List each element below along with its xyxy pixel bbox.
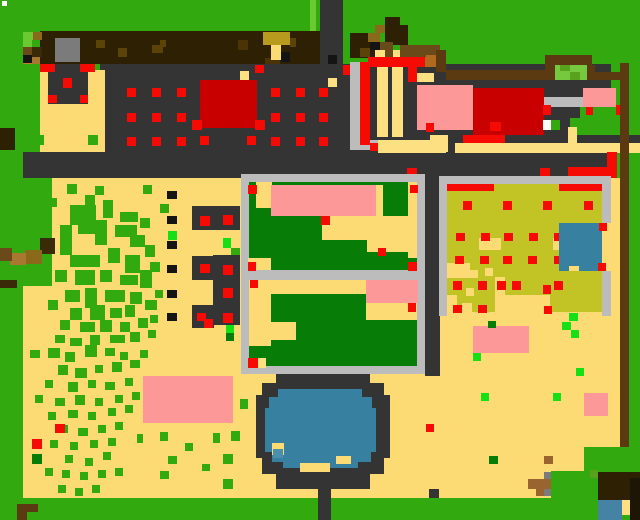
market-stalls (200, 216, 210, 226)
orchard (202, 464, 210, 471)
orchard (85, 195, 95, 205)
north-terrain (310, 0, 316, 32)
plaza-items (127, 113, 136, 122)
south-features (488, 321, 496, 328)
market-stalls (223, 313, 233, 323)
garden-plots (248, 358, 258, 368)
orchard (85, 345, 97, 357)
orchard (60, 225, 72, 255)
orchard (155, 290, 163, 298)
orchard (30, 350, 40, 358)
farm-house (80, 64, 95, 72)
orchard (160, 204, 169, 213)
orchard (213, 433, 220, 443)
market-stalls (167, 265, 177, 273)
orchard (120, 212, 138, 222)
north-terrain (32, 47, 42, 57)
olive-garden (447, 184, 494, 191)
orchard (75, 368, 87, 378)
orchard (90, 305, 105, 320)
garden-plots (366, 280, 418, 303)
orchard (143, 185, 152, 194)
west-green-bank (40, 238, 55, 254)
farm-house (35, 135, 44, 145)
fence-and-hedge-box (446, 70, 546, 80)
market-hall (360, 62, 370, 145)
orchard (100, 320, 112, 332)
west-green-bank (0, 128, 15, 150)
olive-garden (512, 281, 521, 290)
olive-garden (485, 268, 493, 276)
orchard (105, 382, 115, 390)
north-terrain (368, 33, 380, 42)
garden-plots (256, 280, 366, 294)
market-hall (377, 67, 388, 137)
orchard (88, 412, 96, 420)
north-terrain (2, 1, 7, 6)
plaza-items (319, 137, 328, 146)
olive-garden (455, 256, 464, 264)
orchard (110, 335, 125, 343)
south-features (473, 326, 529, 353)
market-stalls (204, 319, 213, 328)
north-terrain (23, 40, 32, 47)
market-hall (408, 62, 417, 82)
orchard (55, 335, 65, 343)
south-green-band (584, 447, 640, 471)
orchard (160, 471, 169, 479)
north-terrain (360, 48, 370, 57)
orchard (150, 262, 160, 272)
olive-garden (439, 176, 611, 184)
east-green-strip (629, 152, 640, 471)
fence-and-hedge-box (426, 55, 436, 65)
olive-garden (529, 233, 538, 241)
orchard (92, 485, 100, 493)
south-features (571, 330, 579, 338)
market-stalls (167, 216, 177, 224)
east-block (430, 135, 448, 152)
orchard (130, 360, 140, 368)
market-hall (370, 143, 378, 151)
west-green-bank (23, 178, 52, 286)
market-stalls (167, 290, 177, 298)
orchard (98, 470, 106, 478)
plaza-items (177, 137, 186, 146)
west-green-bank (10, 253, 26, 265)
olive-garden (503, 256, 512, 264)
orchard (103, 452, 111, 460)
north-terrain (33, 32, 42, 40)
garden-plots (376, 185, 383, 216)
garden-plots (408, 303, 416, 312)
garden-plots (241, 174, 425, 182)
orchard (65, 352, 75, 362)
plaza-items (247, 136, 256, 145)
orchard (58, 485, 66, 493)
south-features (544, 456, 553, 464)
garden-plots (378, 248, 386, 256)
plaza-items (296, 113, 305, 122)
olive-garden (453, 305, 462, 313)
fence-and-hedge-box (436, 50, 446, 72)
market-hall (490, 122, 501, 131)
south-features (481, 393, 489, 401)
orchard (231, 431, 240, 441)
orchard (35, 395, 43, 403)
south-features (569, 313, 578, 321)
olive-garden (569, 266, 579, 271)
big-pond (273, 449, 283, 458)
orchard (75, 488, 83, 496)
plaza-items (177, 113, 186, 122)
orchard (60, 320, 70, 330)
olive-garden (478, 305, 487, 313)
south-features (429, 489, 439, 498)
north-terrain (55, 38, 80, 62)
plaza-items (240, 71, 249, 80)
plaza-items (192, 120, 202, 130)
orchard (130, 235, 145, 247)
plaza-items (127, 137, 136, 146)
orchard (150, 315, 158, 323)
plaza-items (152, 137, 161, 146)
south-features (473, 353, 481, 361)
orchard (103, 200, 113, 218)
orchard (90, 335, 100, 345)
market-stalls (167, 313, 177, 321)
fence-and-hedge-box (560, 65, 570, 71)
market-stalls (223, 238, 231, 248)
orchard (125, 305, 135, 317)
garden-plots (241, 366, 425, 374)
olive-garden (528, 256, 537, 264)
north-terrain (290, 38, 296, 47)
olive-garden (543, 285, 551, 294)
plaza-items (200, 136, 209, 145)
orchard (130, 292, 142, 304)
farm-house (63, 78, 72, 88)
east-block (448, 135, 455, 152)
orchard (50, 440, 58, 448)
orchard (120, 322, 130, 332)
orchard (105, 290, 125, 302)
plaza-items (319, 88, 328, 97)
orchard (120, 275, 138, 285)
orchard (240, 399, 248, 409)
big-pond (336, 456, 351, 464)
plaza-items (296, 137, 305, 146)
orchard (115, 422, 123, 430)
olive-garden (470, 270, 478, 278)
orchard (88, 380, 96, 388)
orchard (80, 322, 95, 332)
market-stalls (168, 231, 177, 240)
orchard (110, 308, 122, 318)
market-stalls (200, 264, 210, 273)
orchard (95, 220, 107, 245)
orchard (58, 365, 68, 375)
fence-and-hedge-box (587, 65, 595, 80)
orchard (68, 382, 78, 392)
fence-and-hedge-box (595, 72, 623, 80)
south-features (489, 456, 498, 464)
olive-garden (463, 201, 472, 210)
garden-plots (241, 270, 425, 280)
garden-plots (250, 280, 258, 288)
orchard (48, 198, 57, 207)
plaza-items (200, 80, 257, 128)
orchard (55, 398, 65, 406)
orchard (168, 456, 177, 464)
orchard (130, 332, 140, 342)
garden-plots (321, 216, 330, 225)
orchard (90, 440, 98, 448)
farm-house (88, 72, 105, 104)
orchard (132, 392, 140, 400)
orchard (68, 410, 78, 418)
olive-garden (439, 176, 447, 316)
plaza-items (271, 113, 280, 122)
big-pond (276, 470, 370, 489)
east-block (463, 135, 505, 143)
orchard (62, 470, 70, 478)
fence-and-hedge-box (620, 63, 629, 447)
south-green-band (630, 478, 640, 520)
farm-house (48, 95, 57, 103)
south-features (584, 393, 608, 416)
plaza-items (152, 113, 161, 122)
orchard (108, 438, 116, 446)
olive-garden (554, 281, 563, 290)
fence-and-hedge-box (545, 55, 592, 65)
orchard (145, 300, 157, 310)
north-terrain (160, 40, 166, 47)
south-features (576, 368, 584, 376)
plaza-items (271, 137, 280, 146)
orchard (80, 472, 88, 480)
olive-garden (584, 201, 593, 210)
olive-garden (497, 281, 506, 290)
south-green-band (318, 489, 331, 520)
plaza-items (177, 88, 186, 97)
orchard (67, 184, 77, 194)
south-green-band (536, 488, 544, 496)
orchard (70, 338, 82, 346)
west-green-bank (25, 250, 42, 264)
orchard (140, 350, 148, 358)
orchard (140, 270, 152, 288)
orchard (75, 270, 95, 285)
market-hall (392, 67, 403, 137)
north-terrain (96, 40, 105, 48)
plaza-items (255, 120, 265, 130)
market-stalls (223, 265, 233, 275)
east-block (568, 127, 577, 143)
roads (425, 176, 440, 376)
garden-plots (408, 262, 417, 271)
orchard (115, 395, 123, 403)
garden-plots (271, 322, 296, 340)
olive-garden (504, 233, 513, 241)
orchard (55, 270, 67, 282)
olive-garden (480, 256, 489, 264)
orchard (78, 428, 88, 436)
plaza-items (127, 88, 136, 97)
market-stalls (231, 248, 240, 255)
orchard (70, 255, 100, 267)
orchard (95, 398, 103, 406)
east-block (583, 88, 616, 107)
orchard (125, 378, 133, 386)
orchard (45, 380, 53, 388)
south-features (143, 376, 233, 423)
south-green-band (544, 472, 551, 479)
olive-garden (466, 288, 474, 296)
fence-and-hedge-box (540, 72, 555, 80)
garden-plots (383, 182, 408, 216)
orchard (48, 412, 56, 420)
orchard (65, 455, 73, 463)
orchard (48, 348, 60, 358)
orchard (98, 425, 106, 433)
olive-garden (453, 281, 462, 290)
north-terrain (23, 32, 33, 40)
olive-garden (598, 263, 606, 271)
east-block (551, 120, 560, 130)
orchard (145, 245, 155, 257)
farm-house (40, 64, 55, 72)
orchard (85, 458, 93, 466)
plaza-items (271, 88, 280, 97)
plaza-items (296, 88, 305, 97)
big-pond (300, 463, 330, 472)
orchard (138, 318, 148, 328)
orchard (223, 479, 233, 489)
orchard (160, 432, 168, 441)
south-green-band (544, 489, 551, 496)
olive-garden (478, 281, 487, 290)
garden-plots (271, 185, 376, 216)
west-green-bank (0, 280, 17, 288)
market-stalls (223, 215, 233, 225)
plaza-items (328, 78, 337, 87)
market-stalls (167, 191, 177, 199)
orchard (112, 362, 122, 372)
south-features (553, 393, 561, 401)
olive-garden (447, 263, 470, 278)
market-stalls (226, 333, 234, 341)
market-stalls (226, 325, 234, 333)
orchard (108, 408, 116, 416)
olive-garden (599, 223, 607, 231)
olive-garden (462, 303, 472, 312)
north-terrain (281, 52, 290, 62)
roads (328, 55, 337, 64)
orchard (70, 442, 78, 450)
orchard (140, 218, 150, 228)
orchard (185, 443, 193, 451)
garden-plots (258, 358, 266, 368)
north-terrain (271, 45, 281, 60)
west-green-bank (0, 248, 12, 261)
east-block (543, 120, 551, 130)
south-green-band (17, 512, 27, 520)
olive-garden (503, 201, 512, 210)
olive-garden (544, 306, 552, 314)
fence-and-hedge-box (570, 72, 580, 80)
market-hall (426, 123, 434, 132)
olive-garden (559, 223, 602, 271)
north-terrain (238, 40, 248, 50)
olive-garden (456, 233, 465, 241)
olive-garden (559, 184, 602, 191)
market-hall (473, 88, 544, 135)
orchard (75, 395, 85, 405)
orchard (223, 454, 233, 464)
south-green-band (598, 500, 622, 520)
plaza-items (152, 88, 161, 97)
orchard (48, 300, 58, 310)
south-green-band (590, 470, 598, 478)
north-terrain (118, 48, 127, 57)
orchard (95, 365, 103, 373)
market-stalls (167, 241, 177, 249)
south-features (32, 439, 42, 449)
north-terrain (23, 55, 32, 63)
orchard (100, 270, 112, 282)
market-stalls (223, 288, 233, 298)
orchard (148, 330, 156, 338)
garden-plots (410, 185, 418, 193)
south-features (55, 424, 65, 433)
garden-plots (248, 262, 256, 271)
orchard (108, 248, 120, 263)
orchard (70, 308, 82, 320)
garden-plots (248, 185, 257, 194)
north-terrain (263, 32, 290, 45)
market-hall (350, 62, 360, 150)
orchard (65, 290, 80, 302)
east-block (543, 105, 551, 115)
east-block (586, 107, 593, 115)
orchard (137, 434, 143, 443)
orchard (95, 186, 104, 195)
orchard (120, 352, 128, 360)
south-features (562, 322, 571, 330)
south-features (426, 424, 434, 432)
orchard (115, 468, 123, 476)
orchard (105, 348, 115, 356)
south-green-band (622, 500, 630, 515)
plaza-items (319, 113, 328, 122)
south-green-band (0, 498, 551, 520)
orchard (125, 405, 133, 413)
garden-plots (256, 182, 272, 208)
plaza-items (255, 65, 264, 73)
farm-house (80, 95, 88, 103)
north-terrain (375, 25, 385, 33)
orchard (45, 468, 53, 476)
north-terrain (23, 47, 32, 55)
town-map (0, 0, 640, 520)
market-hall (417, 73, 434, 82)
farm-house (88, 135, 98, 145)
south-green-band (17, 504, 38, 512)
south-features (32, 454, 42, 464)
orchard (125, 255, 140, 273)
olive-garden (481, 233, 490, 241)
